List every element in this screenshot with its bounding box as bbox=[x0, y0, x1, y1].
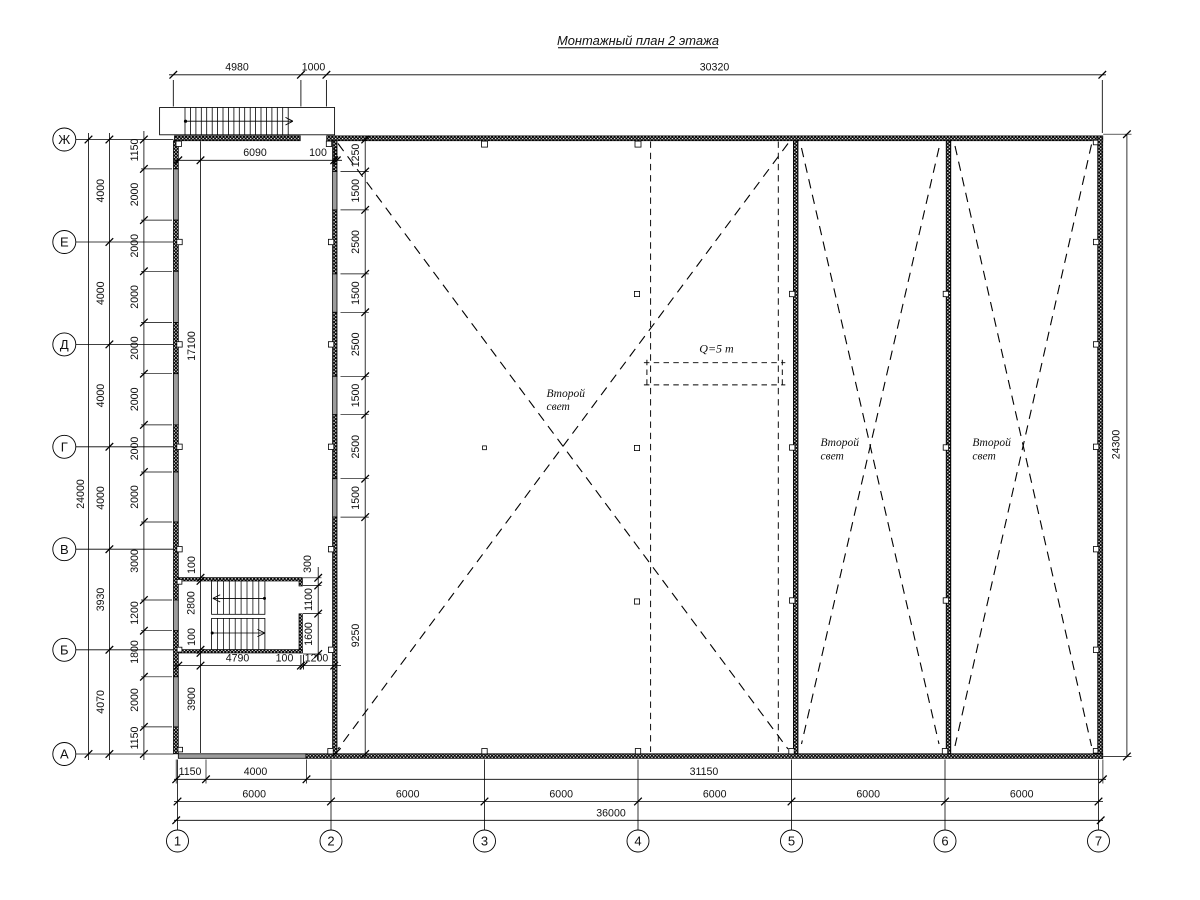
svg-text:2000: 2000 bbox=[129, 387, 141, 411]
svg-text:3930: 3930 bbox=[95, 588, 107, 612]
svg-text:1500: 1500 bbox=[350, 281, 362, 305]
svg-text:1150: 1150 bbox=[129, 727, 141, 750]
svg-text:1800: 1800 bbox=[129, 640, 141, 664]
svg-text:1600: 1600 bbox=[303, 622, 315, 646]
svg-text:6000: 6000 bbox=[242, 789, 266, 801]
svg-text:свет: свет bbox=[547, 401, 570, 413]
svg-text:3: 3 bbox=[481, 834, 488, 849]
svg-text:3000: 3000 bbox=[129, 549, 141, 573]
svg-text:6000: 6000 bbox=[856, 789, 880, 801]
svg-text:24000: 24000 bbox=[75, 479, 87, 509]
svg-text:4: 4 bbox=[634, 834, 641, 849]
svg-text:4000: 4000 bbox=[95, 486, 107, 510]
svg-text:4980: 4980 bbox=[225, 62, 249, 74]
svg-text:свет: свет bbox=[821, 451, 844, 463]
svg-text:24300: 24300 bbox=[1111, 430, 1123, 460]
svg-text:6000: 6000 bbox=[396, 789, 420, 801]
svg-text:2000: 2000 bbox=[129, 183, 141, 207]
svg-text:6090: 6090 bbox=[243, 147, 267, 159]
svg-text:300: 300 bbox=[302, 555, 314, 573]
svg-text:Д: Д bbox=[60, 337, 69, 352]
svg-text:17100: 17100 bbox=[186, 331, 198, 361]
svg-text:4000: 4000 bbox=[95, 281, 107, 305]
svg-text:100: 100 bbox=[276, 653, 294, 665]
svg-text:Е: Е bbox=[60, 235, 69, 250]
svg-text:Монтажный план 2 этажа: Монтажный план 2 этажа bbox=[557, 33, 719, 48]
svg-text:36000: 36000 bbox=[596, 807, 626, 819]
svg-text:Второй: Второй bbox=[547, 387, 586, 400]
svg-text:А: А bbox=[60, 747, 69, 762]
svg-text:Ж: Ж bbox=[58, 132, 70, 147]
svg-text:свет: свет bbox=[972, 451, 995, 463]
svg-text:2000: 2000 bbox=[129, 234, 141, 258]
svg-text:1500: 1500 bbox=[350, 384, 362, 408]
svg-text:2000: 2000 bbox=[129, 688, 141, 712]
svg-text:1500: 1500 bbox=[350, 179, 362, 203]
svg-text:3900: 3900 bbox=[186, 687, 198, 711]
svg-text:31150: 31150 bbox=[690, 766, 719, 778]
svg-text:2: 2 bbox=[327, 834, 334, 849]
svg-text:Второй: Второй bbox=[972, 436, 1011, 449]
svg-text:1500: 1500 bbox=[350, 486, 362, 510]
svg-text:1100: 1100 bbox=[303, 588, 315, 611]
svg-text:2500: 2500 bbox=[350, 230, 362, 254]
svg-text:2000: 2000 bbox=[129, 485, 141, 509]
svg-text:2800: 2800 bbox=[186, 591, 198, 615]
svg-text:5: 5 bbox=[788, 834, 795, 849]
svg-text:4000: 4000 bbox=[95, 384, 107, 408]
svg-text:1: 1 bbox=[174, 834, 181, 849]
svg-text:1000: 1000 bbox=[302, 62, 326, 74]
svg-text:Г: Г bbox=[61, 439, 68, 454]
svg-text:2000: 2000 bbox=[129, 336, 141, 360]
svg-text:2500: 2500 bbox=[350, 435, 362, 459]
svg-text:1250: 1250 bbox=[350, 144, 362, 168]
svg-text:6: 6 bbox=[941, 834, 948, 849]
svg-text:2000: 2000 bbox=[129, 285, 141, 309]
svg-text:Второй: Второй bbox=[821, 436, 860, 449]
svg-text:30320: 30320 bbox=[700, 62, 730, 74]
svg-text:1200: 1200 bbox=[305, 653, 329, 665]
svg-text:9250: 9250 bbox=[350, 624, 362, 648]
svg-text:4000: 4000 bbox=[244, 766, 268, 778]
svg-text:4070: 4070 bbox=[95, 690, 107, 714]
svg-text:6000: 6000 bbox=[549, 789, 573, 801]
svg-text:2500: 2500 bbox=[350, 332, 362, 356]
svg-text:4000: 4000 bbox=[95, 179, 107, 203]
svg-text:4790: 4790 bbox=[226, 653, 250, 665]
svg-text:6000: 6000 bbox=[1010, 789, 1034, 801]
svg-text:2000: 2000 bbox=[129, 437, 141, 461]
svg-text:100: 100 bbox=[186, 556, 198, 574]
svg-text:Б: Б bbox=[60, 642, 69, 657]
svg-text:1150: 1150 bbox=[179, 766, 202, 778]
svg-text:1200: 1200 bbox=[129, 601, 141, 625]
svg-text:7: 7 bbox=[1095, 834, 1102, 849]
svg-text:100: 100 bbox=[309, 147, 327, 159]
svg-text:6000: 6000 bbox=[703, 789, 727, 801]
svg-text:100: 100 bbox=[186, 628, 198, 646]
svg-text:Q=5 т: Q=5 т bbox=[699, 342, 734, 356]
svg-text:В: В bbox=[60, 542, 69, 557]
svg-text:1150: 1150 bbox=[129, 139, 141, 162]
